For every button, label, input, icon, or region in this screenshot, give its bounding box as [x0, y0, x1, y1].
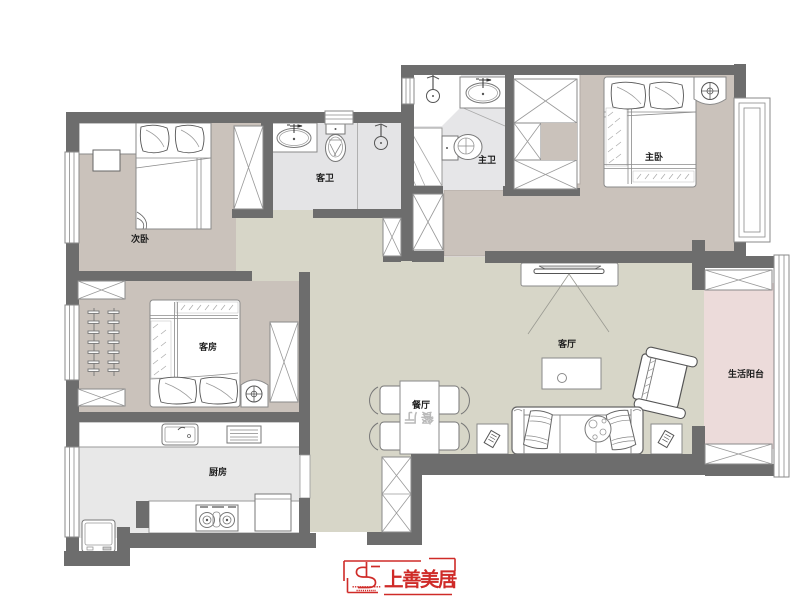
svg-text:客卫: 客卫	[315, 172, 334, 183]
svg-text:客房: 客房	[198, 341, 217, 352]
svg-text:客厅: 客厅	[557, 338, 576, 349]
svg-text:生活阳台: 生活阳台	[728, 368, 764, 379]
svg-text:厨房: 厨房	[209, 466, 227, 477]
svg-text:上善美居: 上善美居	[384, 568, 457, 591]
svg-text:餐厅: 餐厅	[411, 399, 430, 410]
svg-text:主卧: 主卧	[645, 151, 663, 162]
svg-text:餐 厅: 餐 厅	[404, 410, 435, 425]
svg-text:主卫: 主卫	[478, 154, 496, 165]
svg-text:次卧: 次卧	[131, 233, 149, 244]
